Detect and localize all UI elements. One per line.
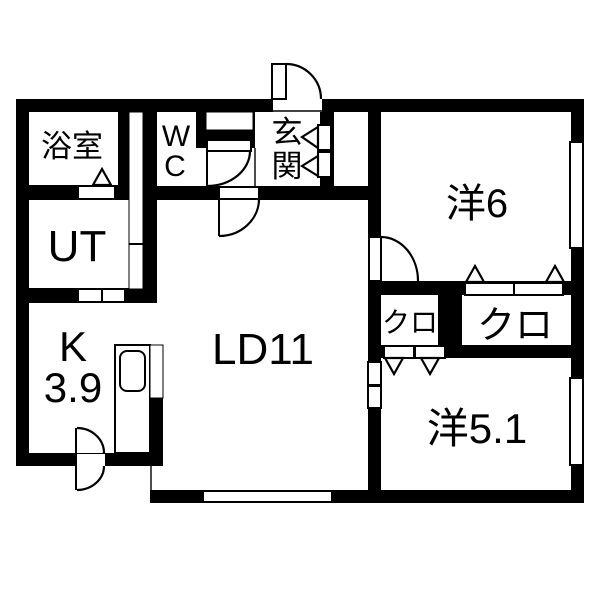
room-label-utility: UT (48, 222, 107, 271)
kitchen-sink (120, 351, 145, 391)
kitchen-door-opening (77, 454, 105, 466)
genkan-triangle-a (302, 127, 318, 148)
closet6-door-b (514, 283, 563, 295)
bedroom6-door-arc (381, 237, 418, 281)
entrance-opening (273, 99, 322, 112)
wall-ld-north (143, 186, 380, 200)
room-label-bathroom: 浴室 (41, 129, 103, 164)
wall-ld-west-lower (150, 398, 163, 466)
wc-door-arc (207, 151, 250, 186)
wall-step-gap (150, 466, 163, 490)
kitchen-door-arc-bottom (77, 466, 104, 490)
closet6-door-a (465, 283, 514, 295)
floor-plan-drawing: 浴室 W C UT K 3.9 LD11 玄 関 洋6 クロ クロ 洋5.1 (0, 0, 600, 600)
ut-door-panel-a (78, 289, 102, 302)
room-label-bedroom6: 洋6 (446, 182, 508, 226)
closet6-triangle-b (546, 266, 564, 282)
room-label-entrance-line2: 関 (272, 149, 303, 184)
wall-bedroom6-west (368, 99, 381, 237)
shoe-cabinet-b (318, 152, 331, 177)
room-label-bedroom51: 洋5.1 (427, 405, 527, 452)
genkan-triangle-b (302, 156, 318, 176)
wall-corridor-west (143, 99, 157, 303)
bath-door-panel (78, 186, 115, 199)
closet6-triangle-a (466, 266, 484, 282)
bedroom51-window (570, 378, 583, 465)
room-label-wc-line2: C (164, 150, 186, 183)
ld-door-leaf (219, 187, 259, 199)
ld-door-arc (219, 199, 259, 236)
bedroom6-door-leaf (369, 237, 381, 281)
entrance-door-leaf (272, 64, 286, 99)
closet51-door-a (384, 346, 414, 358)
room-label-closet-small: クロ (382, 307, 438, 338)
entry-niche (206, 112, 253, 130)
wall-top-right (322, 99, 584, 112)
room-label-entrance-line1: 玄 (272, 115, 303, 150)
counter-side-strip (150, 345, 163, 398)
sliding-door-panel-a (368, 362, 381, 385)
kitchen-door-arc-top (77, 428, 104, 453)
floor-plan: 浴室 W C UT K 3.9 LD11 玄 関 洋6 クロ クロ 洋5.1 (0, 0, 600, 600)
ld-window (203, 491, 332, 502)
bath-door-triangle (93, 169, 111, 185)
room-label-living-dining: LD11 (212, 325, 314, 374)
closet51-triangle-b (421, 358, 439, 374)
ut-door-panel-b (102, 289, 125, 302)
room-label-closet-large: クロ (477, 305, 553, 347)
wall-left (16, 99, 29, 466)
pipe-shaft (129, 112, 143, 289)
shoe-cabinet-a (318, 125, 331, 150)
closet51-triangle-a (385, 358, 403, 374)
room-label-kitchen-line2: 3.9 (44, 364, 102, 411)
room-label-wc-line1: W (162, 120, 191, 153)
closet51-door-b (415, 346, 445, 358)
room-label-kitchen-line1: K (59, 323, 87, 370)
wc-door-leaf (207, 140, 251, 151)
bedroom6-window (570, 142, 583, 248)
entrance-door-arc (286, 64, 321, 99)
sliding-door-panel-b (368, 386, 381, 408)
